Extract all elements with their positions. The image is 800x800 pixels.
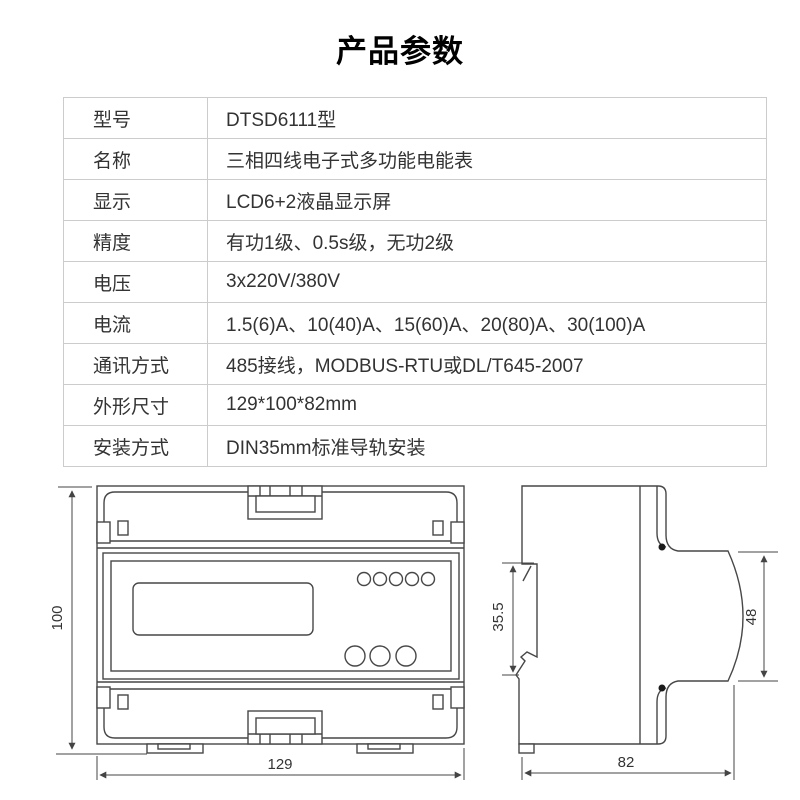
top-seal-tab [248, 486, 322, 519]
mounting-feet [147, 744, 413, 753]
table-row: 精度 有功1级、0.5s级，无功2级 [64, 221, 766, 262]
dim-height-label: 100 [49, 605, 66, 630]
technical-drawings: 100 129 [0, 455, 800, 800]
bottom-seal-tab [248, 711, 322, 744]
spec-value: 1.5(6)A、10(40)A、15(60)A、20(80)A、30(100)A [208, 303, 766, 343]
spec-value: 3x220V/380V [208, 262, 766, 302]
spec-value: DTSD6111型 [208, 98, 766, 138]
screw-slots [118, 521, 443, 709]
spec-label: 名称 [64, 139, 208, 179]
spec-value: LCD6+2液晶显示屏 [208, 180, 766, 220]
table-row: 型号 DTSD6111型 [64, 98, 766, 139]
side-foot [519, 744, 534, 753]
spec-value: 三相四线电子式多功能电能表 [208, 139, 766, 179]
product-spec-page: 产品参数 型号 DTSD6111型 名称 三相四线电子式多功能电能表 显示 LC… [0, 0, 800, 800]
spec-label: 显示 [64, 180, 208, 220]
spec-label: 通讯方式 [64, 344, 208, 384]
table-row: 名称 三相四线电子式多功能电能表 [64, 139, 766, 180]
table-row: 通讯方式 485接线，MODBUS-RTU或DL/T645-2007 [64, 344, 766, 385]
dim-rail-label: 35.5 [490, 602, 507, 631]
dim-face-label: 48 [743, 609, 760, 626]
screw-dot [659, 685, 666, 692]
panel-buttons [345, 646, 416, 666]
page-title: 产品参数 [0, 26, 800, 71]
spec-value: 有功1级、0.5s级，无功2级 [208, 221, 766, 261]
spec-table: 型号 DTSD6111型 名称 三相四线电子式多功能电能表 显示 LCD6+2液… [63, 97, 767, 467]
dim-depth-label: 82 [618, 754, 635, 771]
spec-label: 电流 [64, 303, 208, 343]
spec-label: 精度 [64, 221, 208, 261]
table-row: 电流 1.5(6)A、10(40)A、15(60)A、20(80)A、30(10… [64, 303, 766, 344]
table-row: 显示 LCD6+2液晶显示屏 [64, 180, 766, 221]
cover-notches [97, 522, 464, 708]
spec-label: 外形尺寸 [64, 385, 208, 425]
lcd-window [133, 583, 313, 635]
side-view-drawing [516, 486, 743, 753]
indicator-leds [358, 573, 435, 586]
dim-width-label: 129 [267, 756, 292, 773]
spec-label: 型号 [64, 98, 208, 138]
spec-label: 电压 [64, 262, 208, 302]
table-row: 电压 3x220V/380V [64, 262, 766, 303]
front-view-drawing [97, 486, 464, 753]
screw-dot [659, 544, 666, 551]
table-row: 外形尺寸 129*100*82mm [64, 385, 766, 426]
spec-value: 129*100*82mm [208, 385, 766, 425]
spec-value: 485接线，MODBUS-RTU或DL/T645-2007 [208, 344, 766, 384]
